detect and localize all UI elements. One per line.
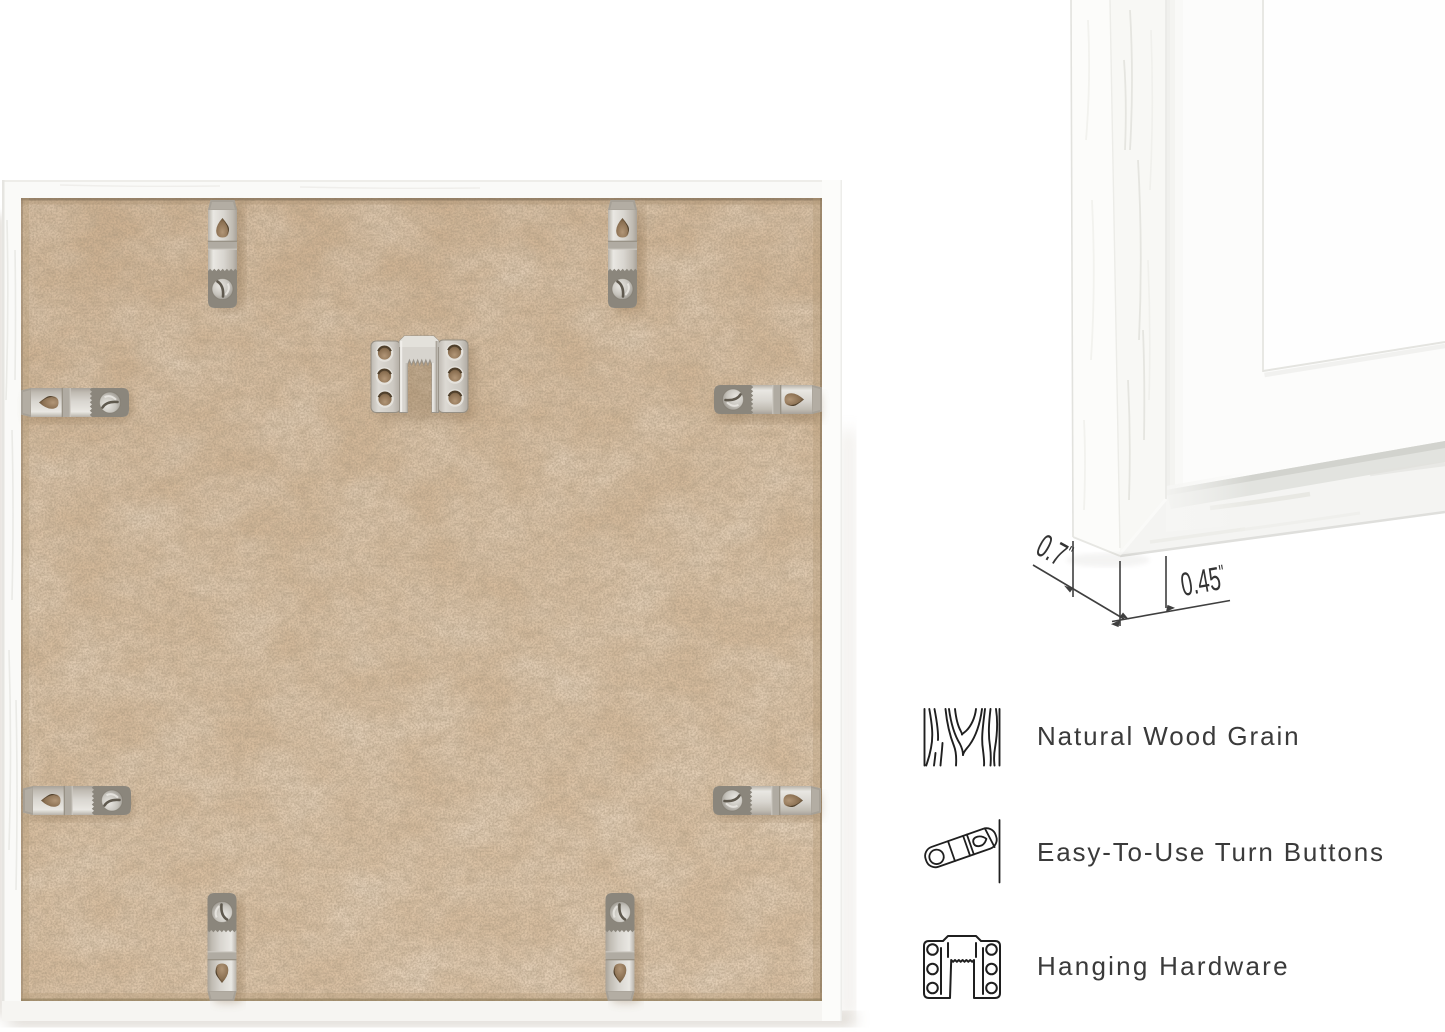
svg-text:0.45": 0.45" xyxy=(1178,559,1228,603)
